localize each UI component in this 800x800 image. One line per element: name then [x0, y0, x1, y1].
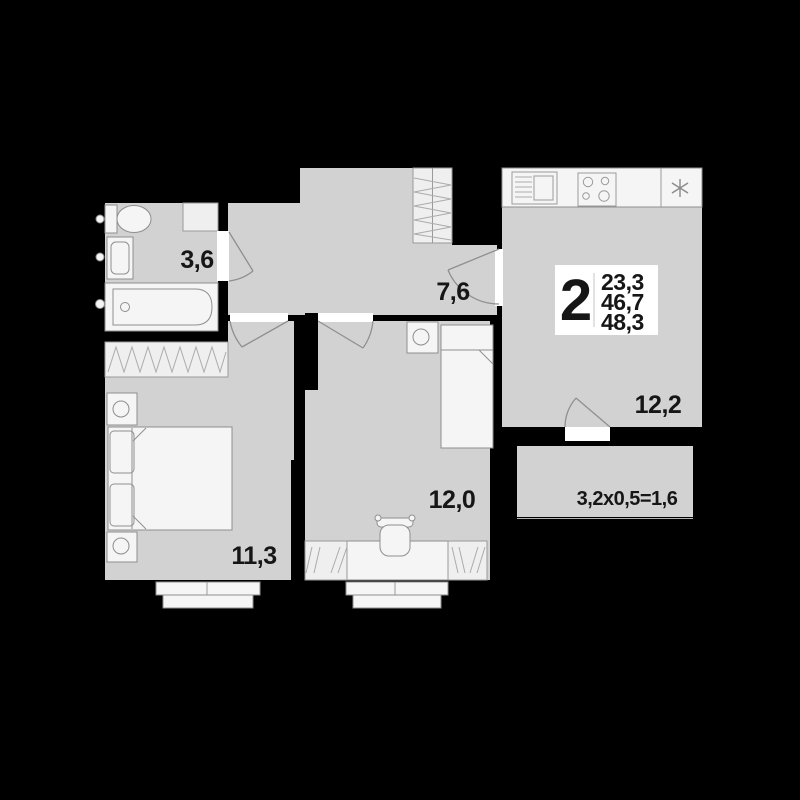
- hall-closet: [413, 168, 452, 243]
- bedroom-2-window: [346, 582, 448, 608]
- sink: [96, 237, 133, 279]
- flush-valve-icon: [96, 215, 104, 223]
- rooms-count: 2: [560, 268, 592, 333]
- door-opening: [318, 313, 373, 322]
- wardrobe: [105, 342, 228, 377]
- bathtub: [96, 283, 219, 331]
- door-opening: [565, 427, 610, 441]
- toilet: [96, 205, 151, 233]
- bed-frame: [108, 427, 232, 530]
- curtain-strip-right: [448, 541, 487, 580]
- floor-plan-svg: 3,6 7,6: [0, 0, 800, 800]
- chair-seat: [380, 525, 410, 556]
- bathtub-tap-icon: [96, 300, 105, 309]
- toilet-tank: [105, 205, 117, 233]
- strip-body: [305, 541, 347, 580]
- door-opening: [217, 231, 229, 281]
- info-badge: 2 23,3 46,7 48,3: [555, 265, 658, 335]
- door-opening: [230, 313, 288, 322]
- toilet-bowl: [117, 206, 151, 233]
- nightstand: [407, 322, 438, 353]
- nightstand-body: [107, 393, 137, 425]
- floor-plan: 3,6 7,6: [0, 0, 800, 800]
- kitchen-counter: [502, 168, 702, 207]
- nightstand-bottom: [107, 532, 137, 562]
- nightstand-top: [107, 393, 137, 425]
- bed-frame: [441, 325, 493, 448]
- chair-armrest: [375, 515, 381, 521]
- window-bay: [163, 595, 253, 608]
- sink-tap-icon: [96, 253, 104, 261]
- double-bed: [108, 427, 232, 530]
- bedroom-2-area-label: 12,0: [429, 486, 476, 514]
- window-sill: [346, 582, 448, 595]
- nightstand-body: [407, 322, 438, 353]
- single-bed: [441, 325, 493, 448]
- curtain-strip-left: [305, 541, 347, 580]
- nightstand-body: [107, 532, 137, 562]
- hallway-area-label: 7,6: [436, 278, 469, 306]
- wall-stub: [305, 313, 318, 390]
- room-balcony: 3,2x0,5=1,6: [577, 488, 678, 510]
- balcony-area-label: 3,2x0,5=1,6: [577, 488, 678, 510]
- washing-machine: [183, 203, 218, 231]
- stat-total-area: 48,3: [601, 309, 644, 335]
- kitchen-area-label: 12,2: [635, 391, 682, 419]
- chair: [375, 515, 415, 556]
- bedroom-window: [156, 582, 260, 608]
- window-bay: [353, 595, 441, 608]
- bedroom-area-label: 11,3: [231, 542, 276, 570]
- chair-armrest: [409, 515, 415, 521]
- door-opening: [495, 249, 503, 306]
- bathroom-area-label: 3,6: [180, 246, 213, 274]
- window-sill: [156, 582, 260, 595]
